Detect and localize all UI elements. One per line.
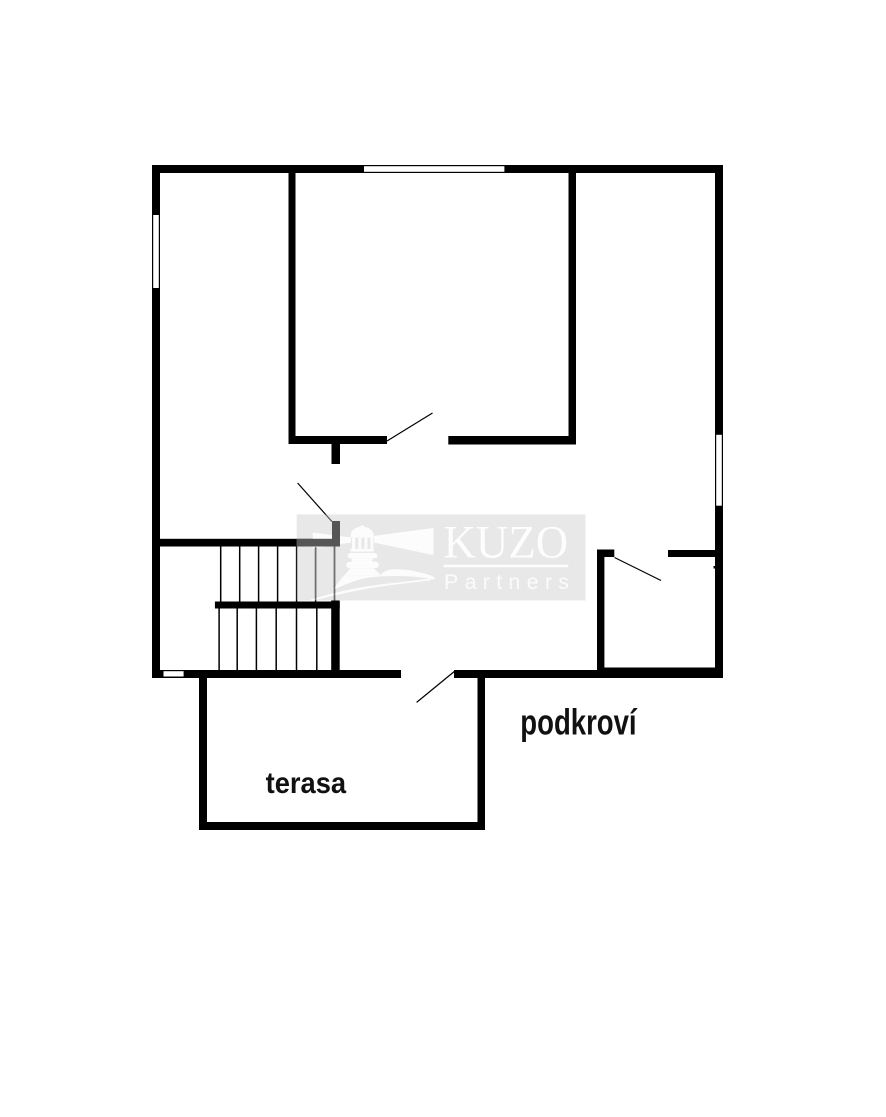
svg-text:KUZO: KUZO (444, 517, 569, 568)
svg-text:terasa: terasa (266, 767, 347, 800)
svg-text:podkroví: podkroví (520, 701, 638, 742)
